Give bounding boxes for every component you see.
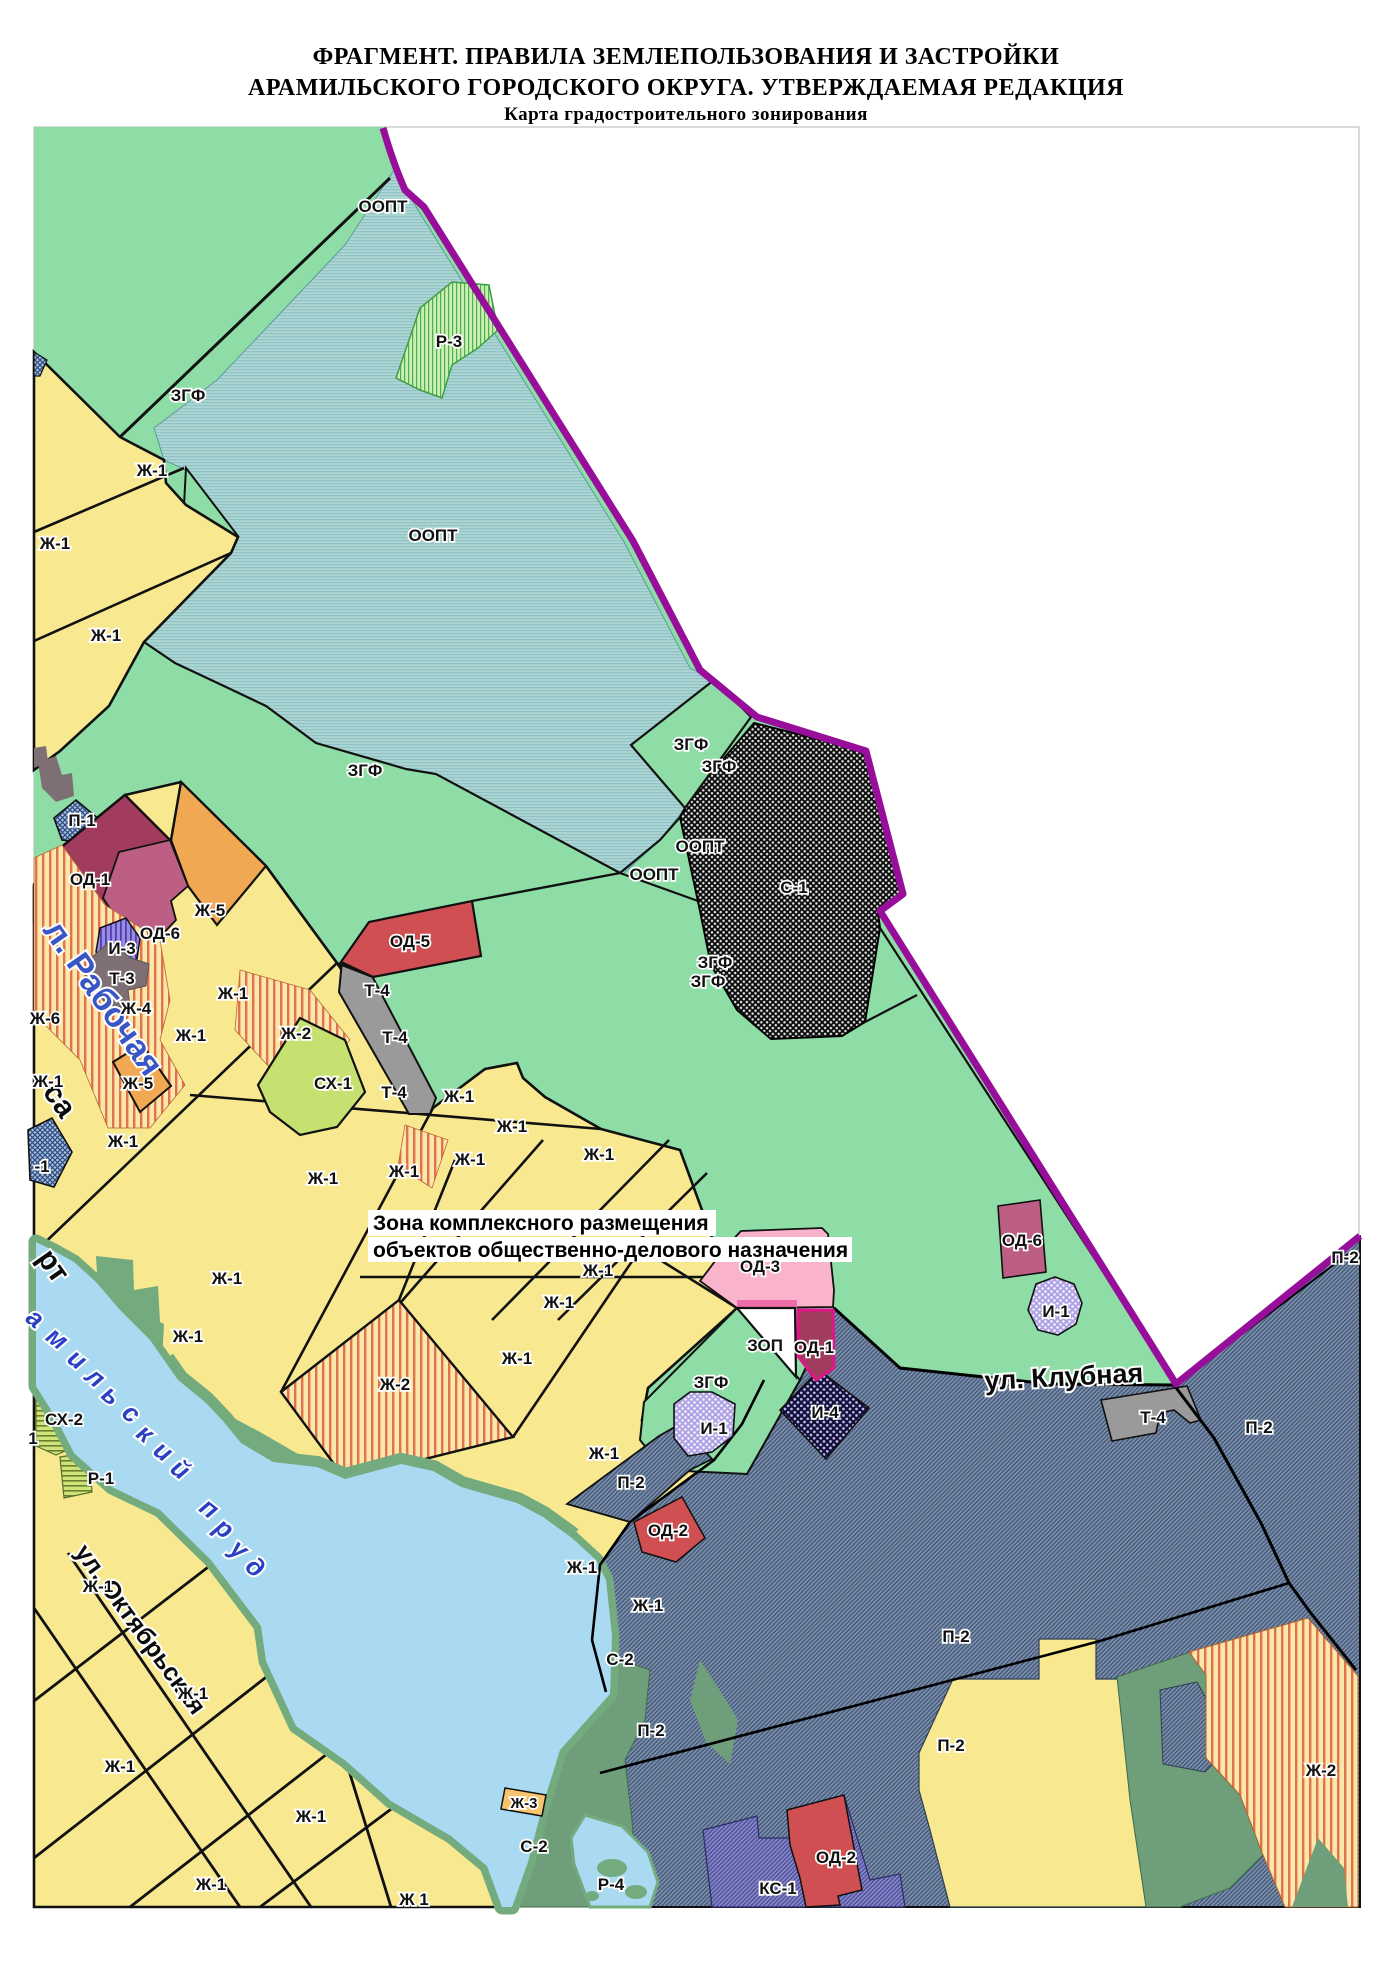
svg-text:Ж-1: Ж-1 [501,1349,532,1368]
svg-text:Т-3: Т-3 [109,969,135,988]
svg-text:ЗГФ: ЗГФ [171,386,206,405]
svg-text:П-2: П-2 [637,1721,664,1740]
svg-text:Т-4: Т-4 [364,981,390,1000]
svg-text:ООПТ: ООПТ [408,526,458,545]
svg-text:ОД-3: ОД-3 [740,1257,780,1276]
svg-text:Ж-5: Ж-5 [194,901,225,920]
svg-text:И-1: И-1 [700,1419,727,1438]
svg-text:ООПТ: ООПТ [629,865,679,884]
svg-text:Ж-4: Ж-4 [120,999,152,1018]
svg-text:Ж-1: Ж-1 [454,1150,485,1169]
svg-text:ОД-2: ОД-2 [648,1521,688,1540]
svg-text:Р-1: Р-1 [88,1469,114,1488]
svg-text:И-3: И-3 [108,939,135,958]
svg-text:Ж-1: Ж-1 [388,1162,419,1181]
svg-text:П-2: П-2 [1245,1418,1272,1437]
svg-text:Ж-1: Ж-1 [82,1577,113,1596]
svg-text:Т-4: Т-4 [382,1028,408,1047]
svg-text:Ж-1: Ж-1 [632,1596,663,1615]
svg-text:ОД-1: ОД-1 [794,1338,834,1357]
svg-text:ЗГФ: ЗГФ [702,757,737,776]
svg-text:Ж-2: Ж-2 [379,1375,410,1394]
svg-text:П-2: П-2 [942,1627,969,1646]
svg-text:Ж-1: Ж-1 [175,1026,206,1045]
svg-text:Ж-1: Ж-1 [295,1807,326,1826]
svg-text:П-2: П-2 [1331,1248,1358,1267]
svg-text:СХ-1: СХ-1 [314,1074,352,1093]
svg-text:Ж-1: Ж-1 [136,461,167,480]
svg-text:Ж-1: Ж-1 [582,1261,613,1280]
svg-text:Зона комплексного размещения: Зона комплексного размещения [373,1212,709,1235]
svg-text:П-1: П-1 [68,811,95,830]
svg-text:С-1: С-1 [780,878,807,897]
svg-text:Ж-2: Ж-2 [280,1024,311,1043]
svg-text:ОД-5: ОД-5 [390,932,430,951]
svg-text:ФРАГМЕНТ. ПРАВИЛА ЗЕМЛЕПОЛЬЗОВ: ФРАГМЕНТ. ПРАВИЛА ЗЕМЛЕПОЛЬЗОВАНИЯ И ЗАС… [313,44,1060,70]
svg-text:ЗГФ: ЗГФ [694,1373,729,1392]
svg-text:ЗГФ: ЗГФ [698,953,733,972]
svg-text:П-2: П-2 [937,1736,964,1755]
svg-text:Ж-1: Ж-1 [104,1757,135,1776]
svg-text:ОД-2: ОД-2 [816,1848,856,1867]
svg-text:Р-3: Р-3 [436,332,462,351]
svg-text:И-4: И-4 [811,1403,839,1422]
svg-text:ООПТ: ООПТ [675,837,725,856]
svg-text:Ж-1: Ж-1 [90,626,121,645]
svg-text:Ж-1: Ж-1 [496,1117,527,1136]
svg-text:Ж 1: Ж 1 [398,1890,429,1909]
svg-text:Р-4: Р-4 [598,1875,625,1894]
svg-text:-1: -1 [34,1157,49,1176]
svg-text:Ж-1: Ж-1 [172,1327,203,1346]
svg-text:Ж-1: Ж-1 [177,1684,208,1703]
svg-text:Ж-1: Ж-1 [107,1132,138,1151]
svg-text:Ж-6: Ж-6 [29,1009,60,1028]
svg-text:Ж-1: Ж-1 [195,1875,226,1894]
svg-text:ООПТ: ООПТ [358,197,408,216]
svg-text:Т-4: Т-4 [1140,1408,1166,1427]
svg-text:Ж-1: Ж-1 [32,1072,63,1091]
svg-text:Ж-5: Ж-5 [122,1074,153,1093]
svg-text:Т-4: Т-4 [381,1083,407,1102]
svg-text:П-2: П-2 [617,1473,644,1492]
svg-text:ОД-1: ОД-1 [70,870,110,889]
svg-text:Ж-1: Ж-1 [39,534,70,553]
svg-text:ЗОП: ЗОП [747,1336,783,1355]
svg-text:Ж-1: Ж-1 [583,1145,614,1164]
svg-text:И-1: И-1 [1042,1302,1069,1321]
svg-text:СХ-2: СХ-2 [45,1410,83,1429]
svg-text:Ж-1: Ж-1 [307,1169,338,1188]
svg-text:АРАМИЛЬСКОГО ГОРОДСКОГО ОКРУГА: АРАМИЛЬСКОГО ГОРОДСКОГО ОКРУГА. УТВЕРЖДА… [248,75,1124,101]
svg-text:Карта градостроительного зонир: Карта градостроительного зонирования [504,104,868,125]
svg-text:Ж-1: Ж-1 [443,1087,474,1106]
svg-text:ОД-6: ОД-6 [140,924,180,943]
svg-text:ЗГФ: ЗГФ [674,735,709,754]
svg-text:Ж-1: Ж-1 [543,1293,574,1312]
svg-text:С-2: С-2 [606,1650,633,1669]
svg-text:ЗГФ: ЗГФ [348,761,383,780]
svg-text:ОД-6: ОД-6 [1002,1231,1042,1250]
svg-text:Ж-1: Ж-1 [588,1444,619,1463]
svg-text:Ж-1: Ж-1 [566,1558,597,1577]
svg-text:ЗГФ: ЗГФ [691,972,726,991]
svg-text:КС-1: КС-1 [759,1879,797,1898]
svg-text:Ж-1: Ж-1 [211,1269,242,1288]
svg-text:1: 1 [28,1429,37,1448]
svg-text:Ж-3: Ж-3 [510,1795,538,1812]
svg-text:Ж-1: Ж-1 [217,984,248,1003]
svg-text:С-2: С-2 [520,1837,547,1856]
svg-text:Ж-2: Ж-2 [1305,1761,1336,1780]
